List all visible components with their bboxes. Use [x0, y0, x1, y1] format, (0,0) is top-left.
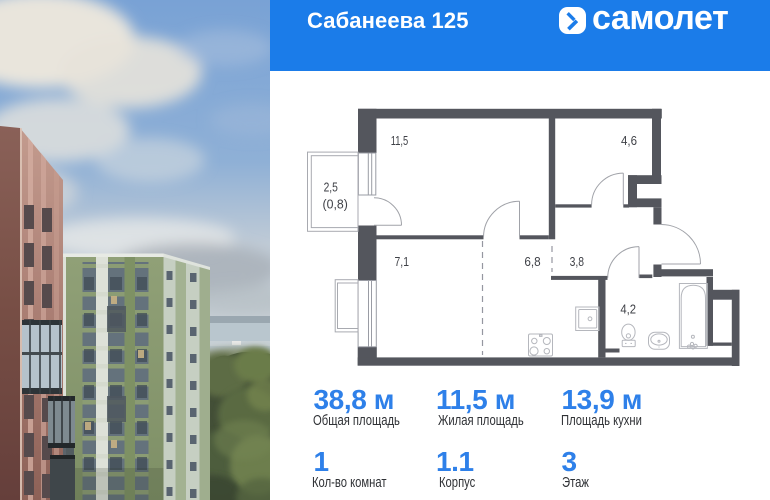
- svg-text:6,8: 6,8: [524, 255, 540, 269]
- svg-text:3,8: 3,8: [570, 255, 584, 269]
- svg-text:4,6: 4,6: [621, 134, 637, 148]
- svg-text:(0,8): (0,8): [323, 198, 348, 212]
- svg-text:7,1: 7,1: [395, 255, 410, 269]
- svg-text:4,2: 4,2: [620, 302, 636, 316]
- svg-text:2,5: 2,5: [324, 180, 338, 194]
- svg-text:11,5: 11,5: [391, 134, 409, 148]
